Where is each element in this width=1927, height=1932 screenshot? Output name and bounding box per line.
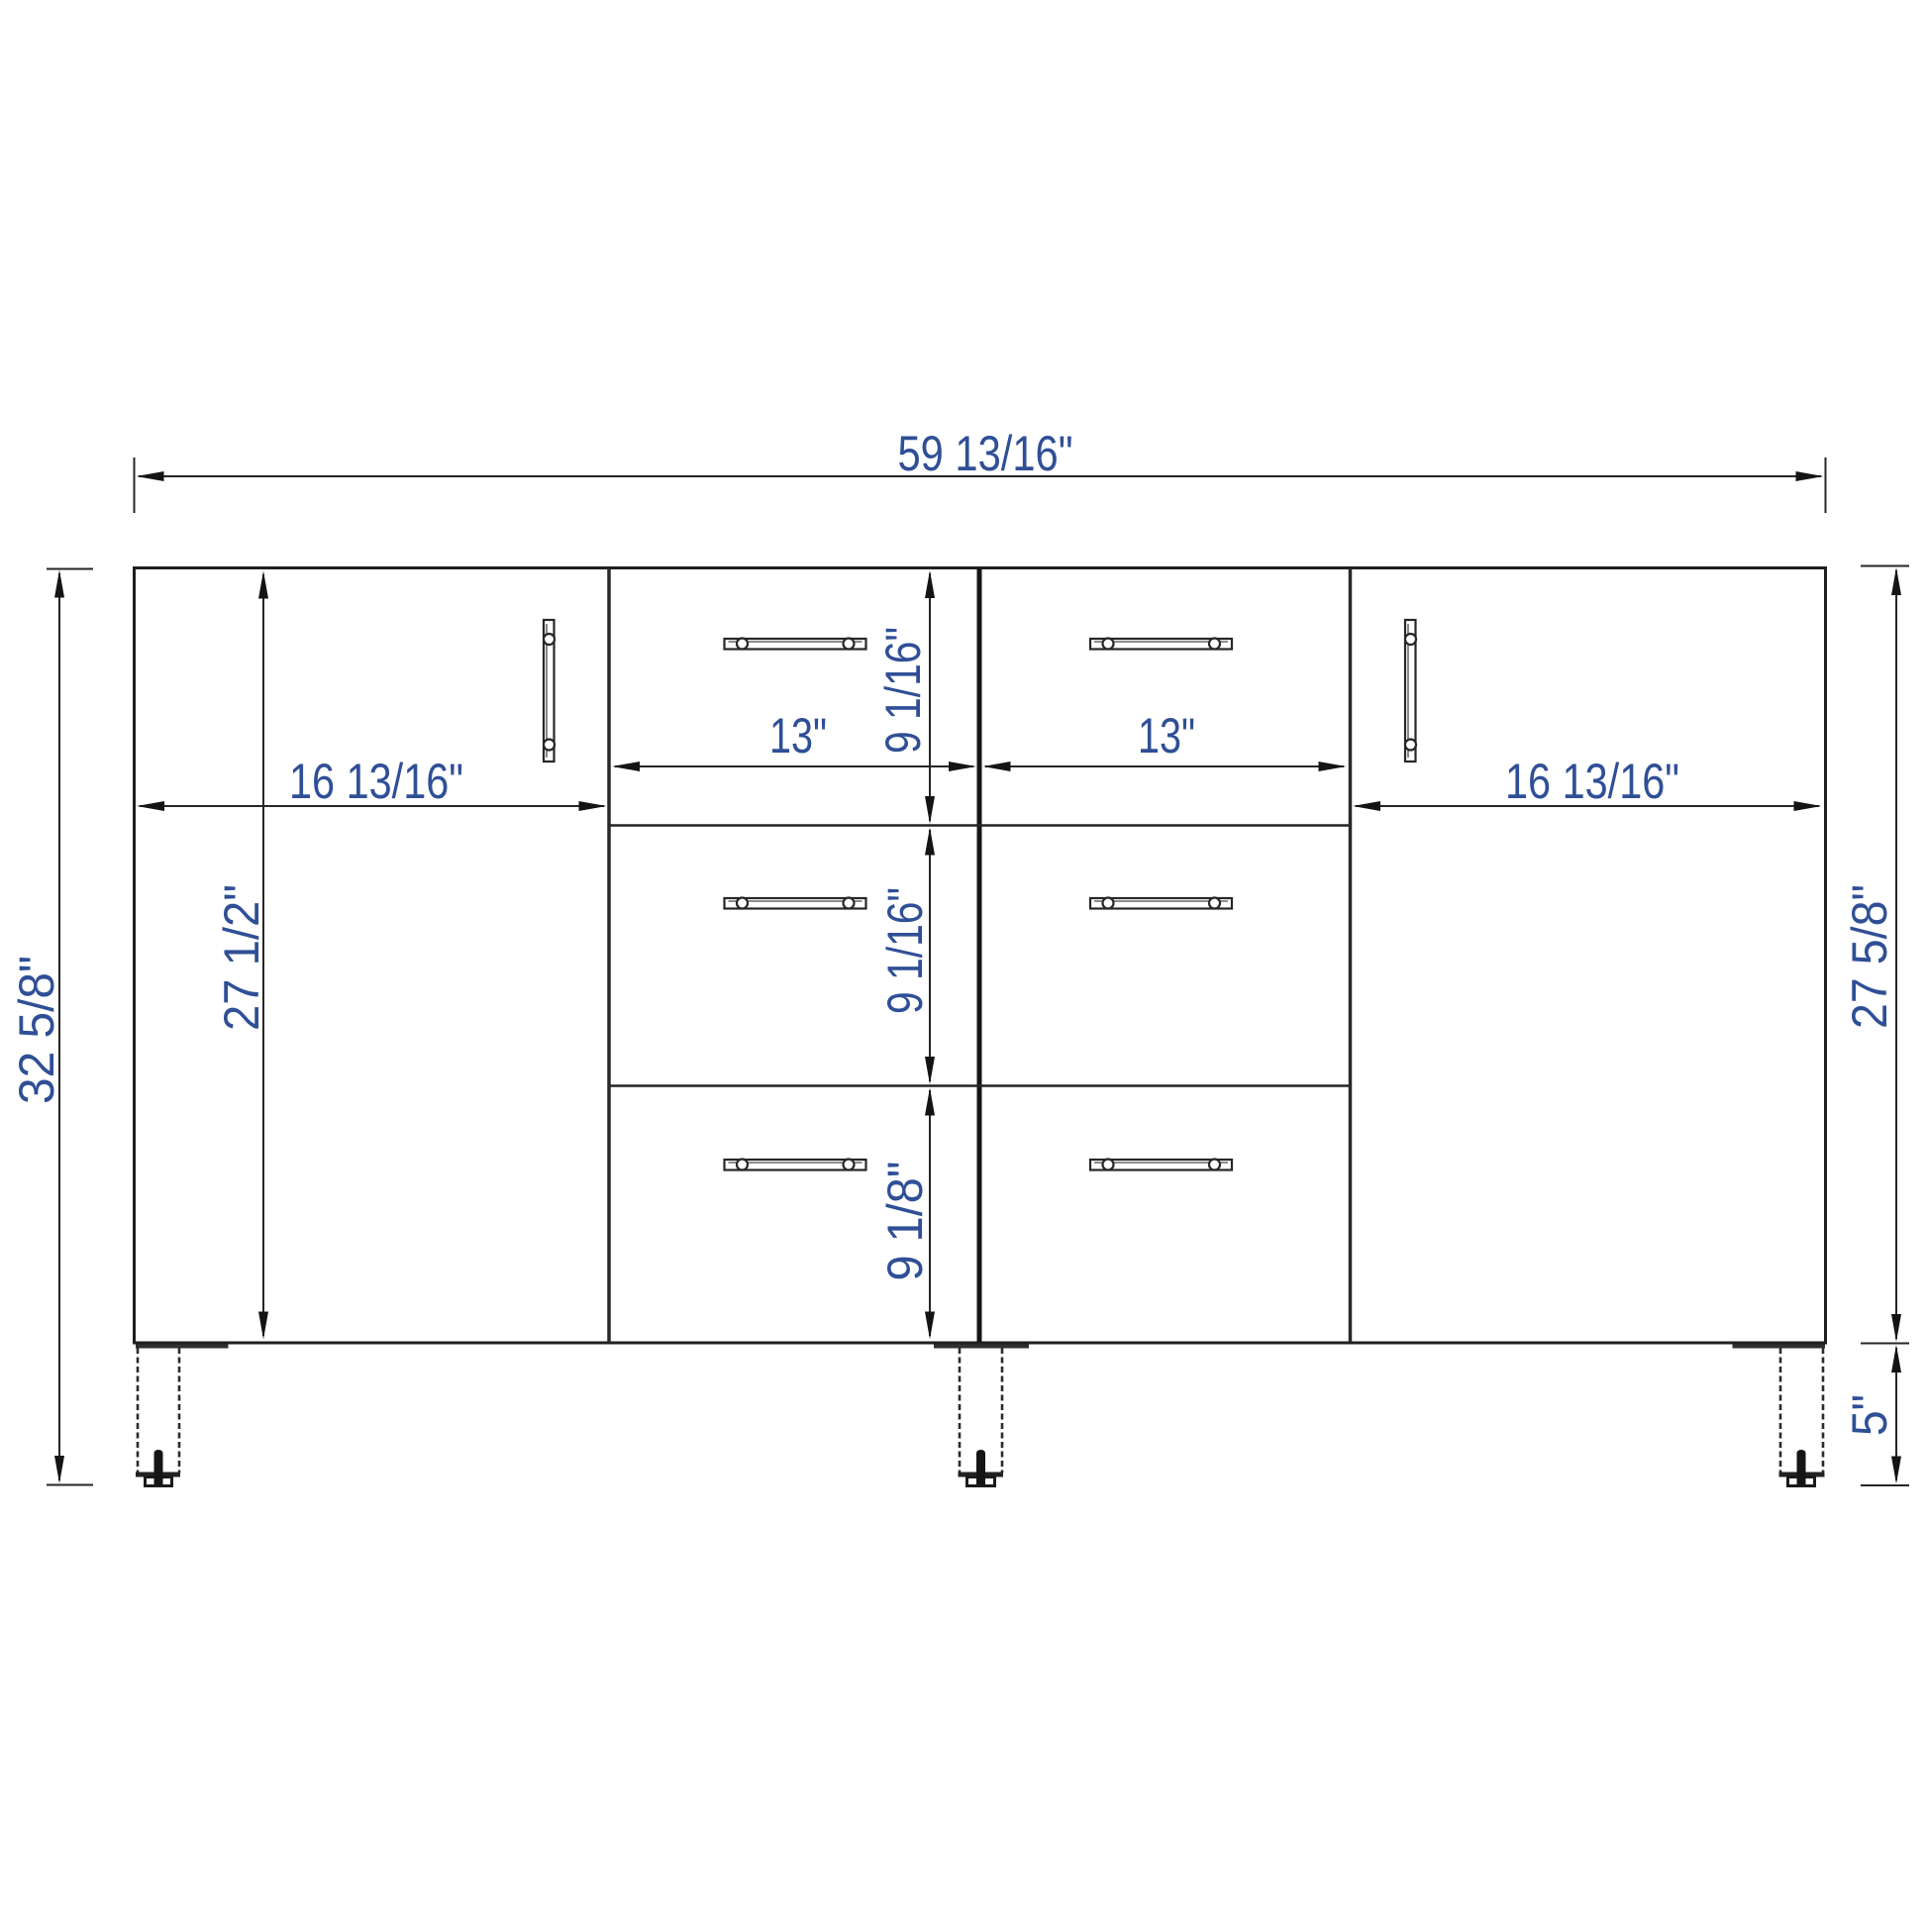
svg-text:32 5/8": 32 5/8": [9, 956, 64, 1104]
svg-text:9 1/16": 9 1/16": [877, 887, 933, 1014]
svg-text:5": 5": [1842, 1394, 1897, 1436]
svg-text:9 1/16": 9 1/16": [875, 627, 931, 754]
svg-text:27 5/8": 27 5/8": [1842, 884, 1897, 1029]
svg-text:16 13/16": 16 13/16": [289, 754, 463, 809]
svg-text:13": 13": [1138, 708, 1195, 763]
svg-text:27 1/2": 27 1/2": [214, 884, 269, 1031]
svg-text:59 13/16": 59 13/16": [898, 426, 1073, 481]
svg-text:13": 13": [769, 708, 827, 763]
svg-text:16 13/16": 16 13/16": [1505, 754, 1679, 809]
svg-text:9 1/8": 9 1/8": [877, 1162, 933, 1281]
